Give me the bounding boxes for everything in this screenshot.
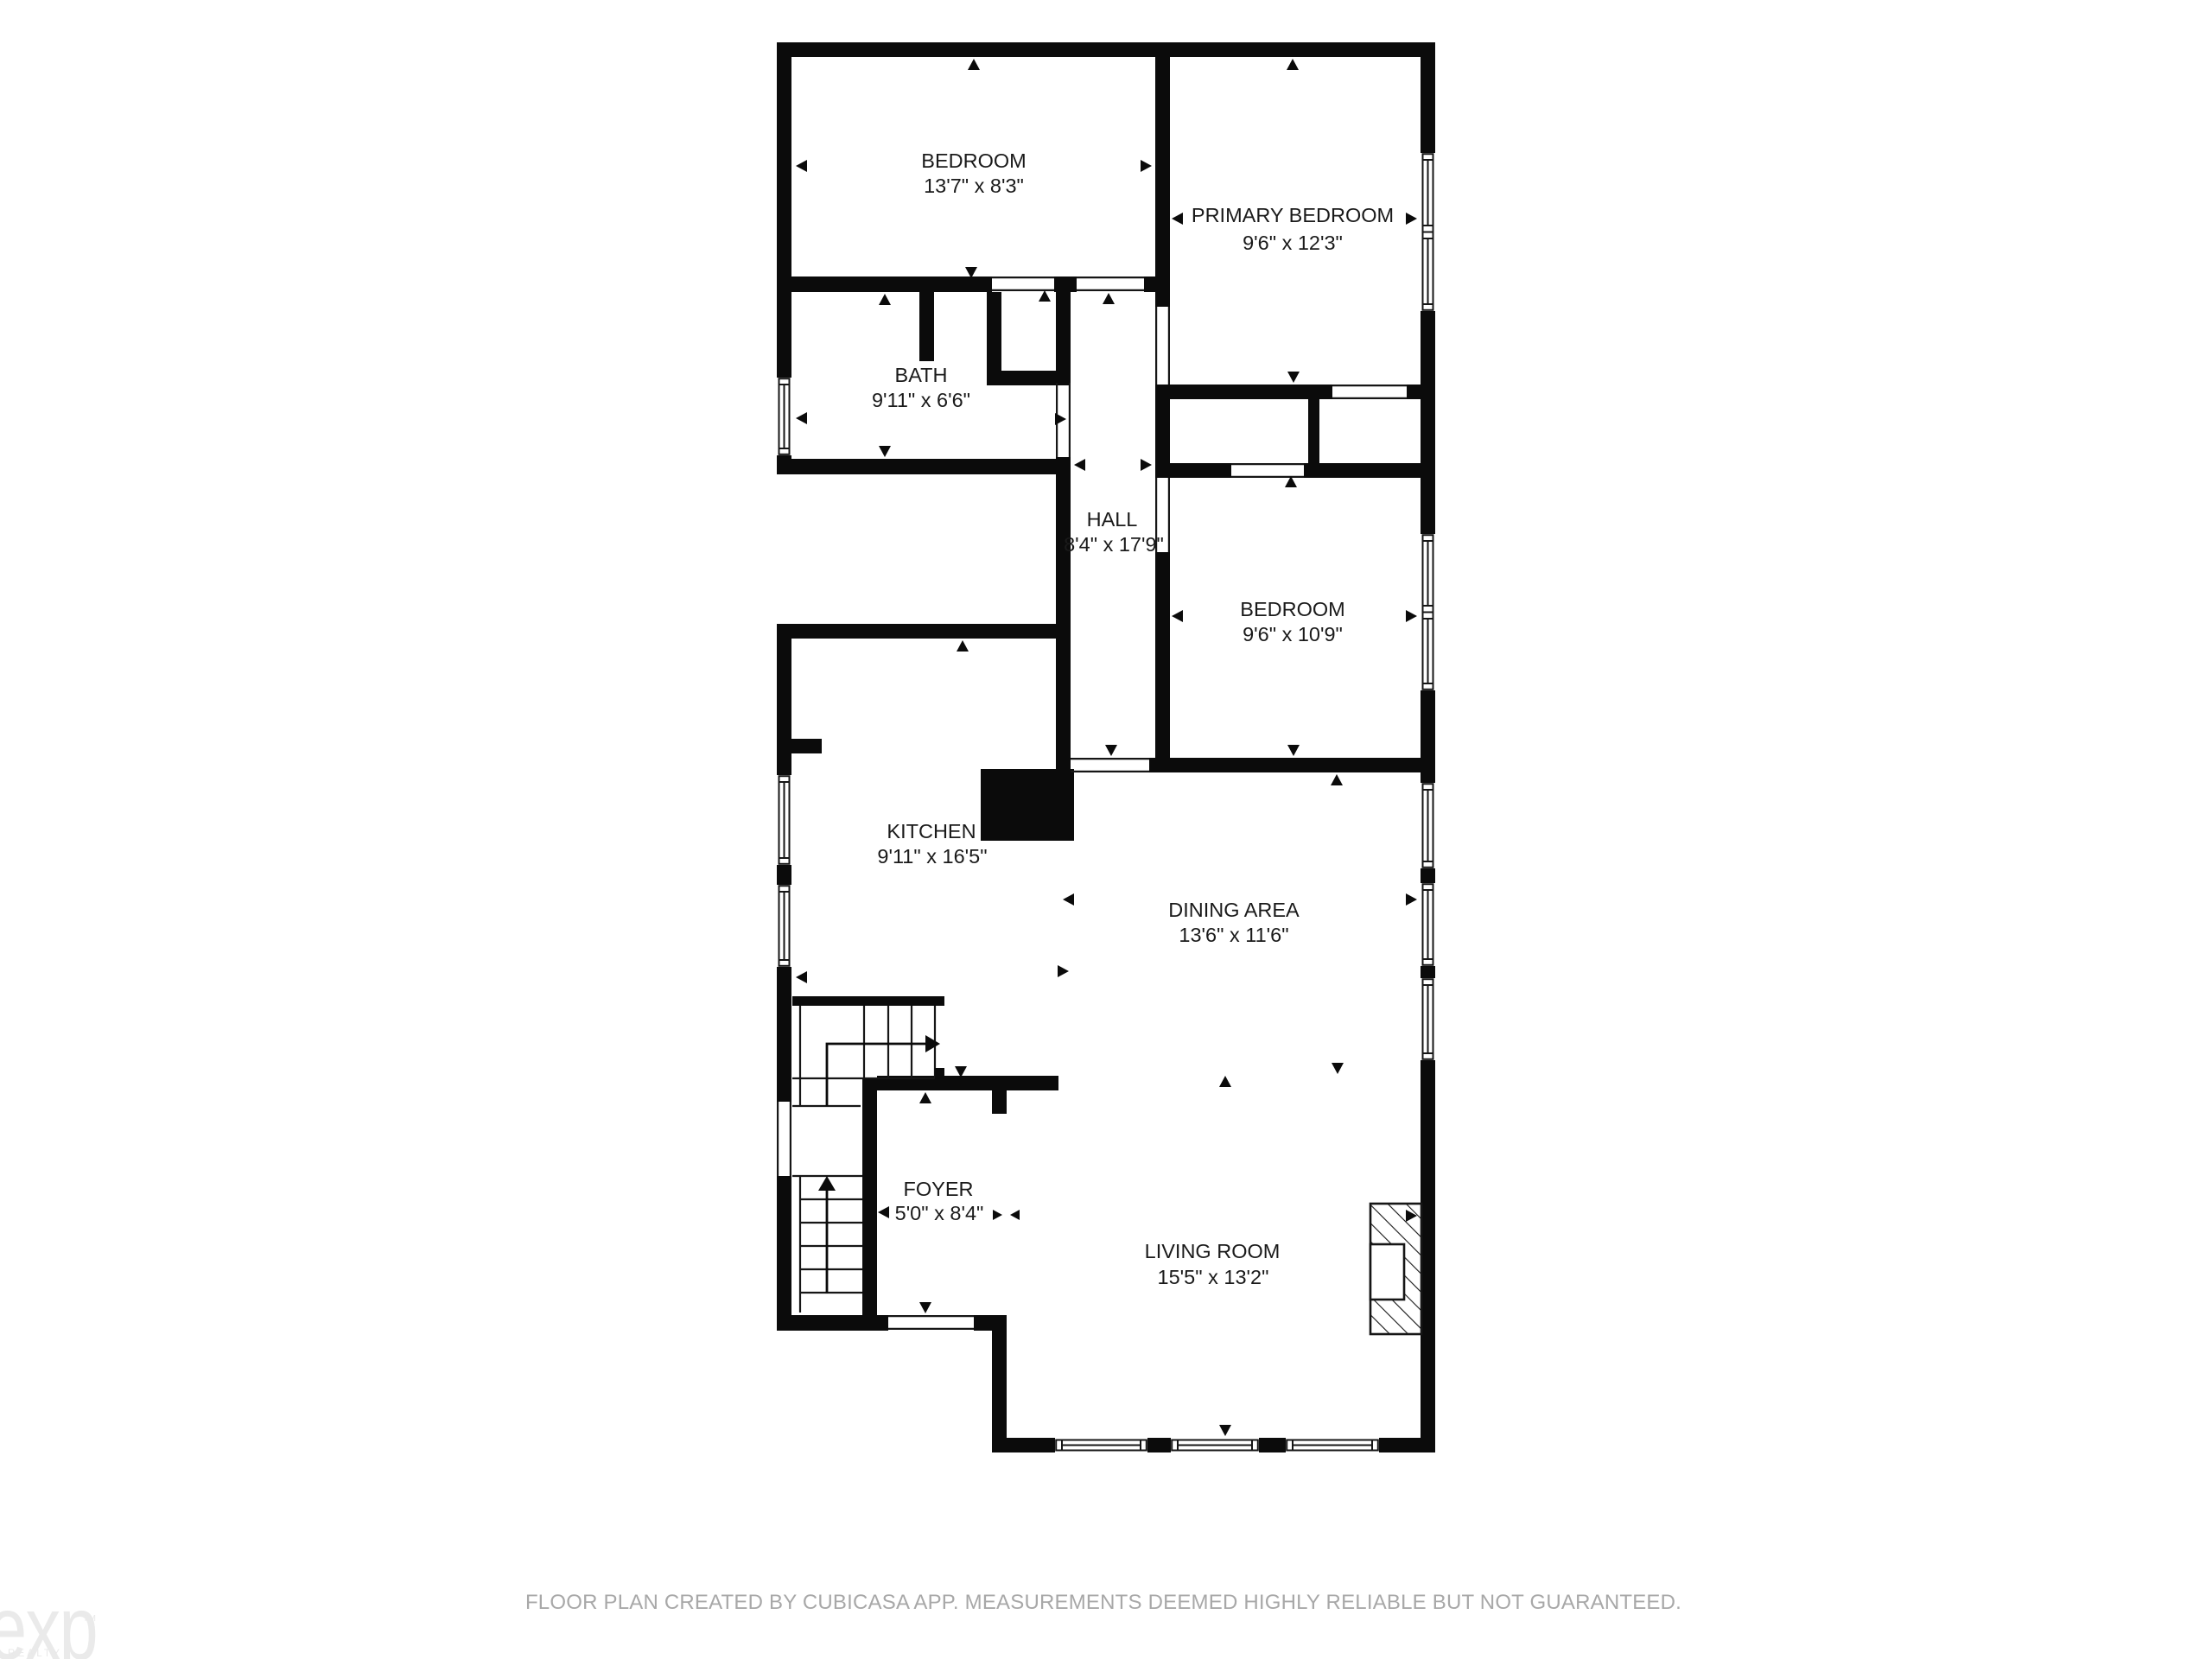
- svg-text:TM: TM: [83, 1614, 96, 1624]
- svg-text:15'5" x 13'2": 15'5" x 13'2": [1158, 1266, 1269, 1288]
- svg-text:HALL: HALL: [1087, 508, 1138, 531]
- svg-text:KITCHEN: KITCHEN: [887, 820, 976, 842]
- svg-text:9'11" x 6'6": 9'11" x 6'6": [872, 389, 970, 411]
- svg-text:REALTY: REALTY: [8, 1649, 62, 1659]
- svg-text:FLOOR PLAN CREATED BY CUBICASA: FLOOR PLAN CREATED BY CUBICASA APP. MEAS…: [525, 1591, 1681, 1614]
- svg-text:9'6" x 12'3": 9'6" x 12'3": [1243, 232, 1343, 254]
- svg-text:9'6" x 10'9": 9'6" x 10'9": [1243, 623, 1343, 645]
- svg-text:BEDROOM: BEDROOM: [1240, 598, 1344, 620]
- svg-text:BATH: BATH: [895, 364, 948, 386]
- svg-text:FOYER: FOYER: [904, 1178, 974, 1200]
- svg-text:8'4" x 17'9": 8'4" x 17'9": [1064, 533, 1164, 556]
- svg-text:13'7" x 8'3": 13'7" x 8'3": [924, 175, 1024, 197]
- svg-text:9'11" x 16'5": 9'11" x 16'5": [877, 845, 987, 868]
- svg-text:DINING AREA: DINING AREA: [1168, 899, 1300, 921]
- svg-text:BEDROOM: BEDROOM: [921, 149, 1026, 172]
- svg-text:PRIMARY BEDROOM: PRIMARY BEDROOM: [1192, 204, 1394, 226]
- svg-text:5'0" x 8'4": 5'0" x 8'4": [895, 1202, 984, 1224]
- svg-text:13'6" x 11'6": 13'6" x 11'6": [1179, 924, 1288, 946]
- svg-text:LIVING ROOM: LIVING ROOM: [1145, 1240, 1281, 1262]
